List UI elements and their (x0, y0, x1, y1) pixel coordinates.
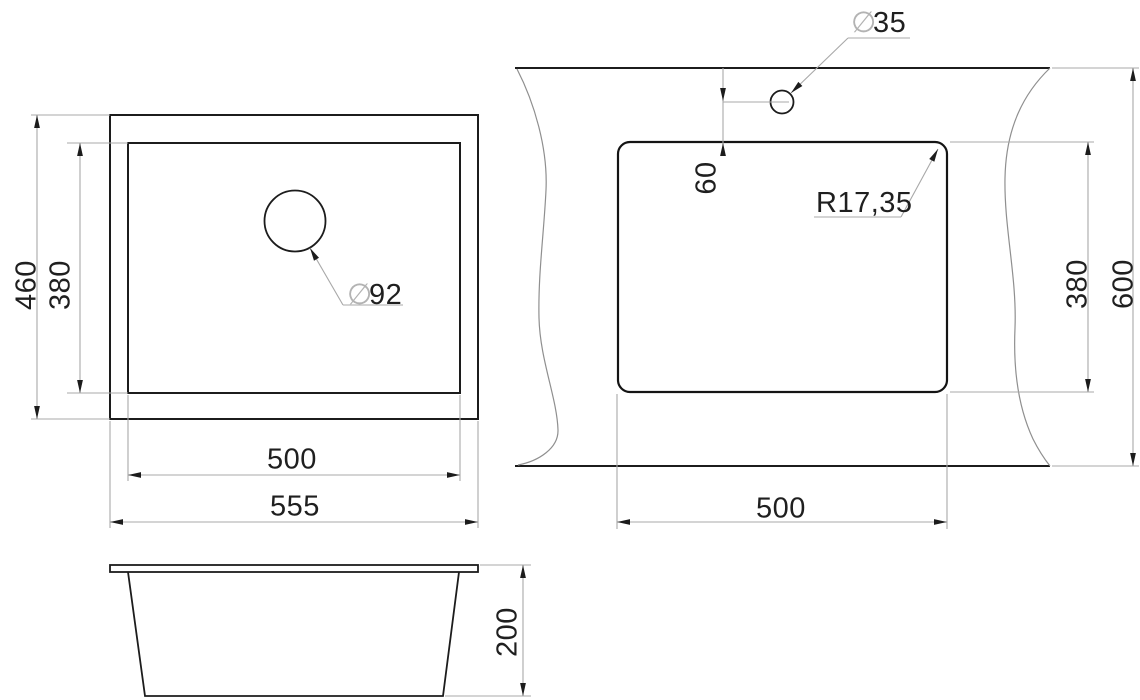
dim-label-drain: 92 (369, 279, 402, 311)
leader-line-drain (310, 248, 343, 305)
countertop-break-line-left (517, 69, 558, 465)
dim-label-cutout-height: 380 (1062, 259, 1094, 309)
cutout-opening (618, 142, 947, 392)
dim-label-hole-offset: 60 (691, 161, 723, 194)
countertop-break-line-right (1005, 68, 1050, 466)
side-view: 200 (110, 565, 531, 696)
sink-bowl (128, 143, 460, 393)
drawing-canvas: 460 380 500 555 ∅ 92 200 60 ∅ 35 (0, 0, 1140, 700)
dim-label-cutout-width: 500 (756, 493, 806, 525)
sink-flange (110, 565, 478, 572)
dim-label-depth: 200 (492, 607, 524, 657)
sink-outer-rim (110, 115, 478, 419)
dim-label-outer-width: 555 (270, 491, 320, 523)
sink-body-profile (128, 572, 459, 696)
dim-label-faucet-hole: 35 (873, 7, 906, 39)
dim-label-inner-height: 380 (45, 260, 77, 310)
dim-label-corner-radius: R17,35 (816, 187, 913, 219)
sink-technical-drawing: 460 380 500 555 ∅ 92 200 60 ∅ 35 (0, 0, 1140, 700)
leader-line-faucet-hole (791, 38, 848, 93)
dim-label-inner-width: 500 (267, 444, 317, 476)
cutout-view: 60 ∅ 35 R17,35 380 600 500 (515, 7, 1140, 529)
top-view: 460 380 500 555 ∅ 92 (11, 115, 478, 528)
dim-label-counter-height: 600 (1108, 259, 1140, 309)
drain-hole (265, 191, 326, 252)
dim-label-outer-height: 460 (11, 260, 43, 310)
